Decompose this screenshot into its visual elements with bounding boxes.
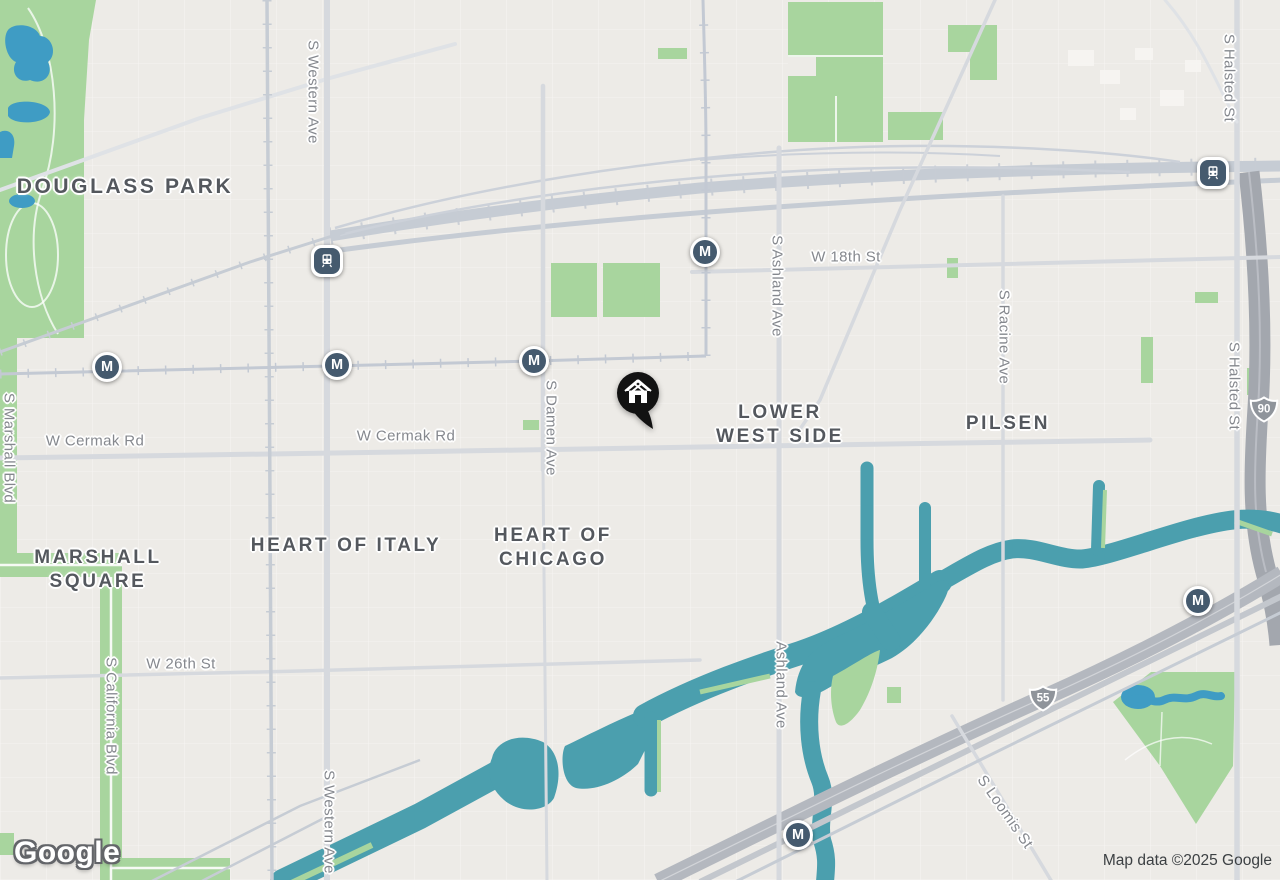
map-attribution: Map data ©2025 Google	[1103, 852, 1272, 870]
metro-station-marker-california[interactable]: M	[92, 352, 122, 382]
metro-station-marker-18th[interactable]: M	[690, 237, 720, 267]
train-station-marker-western[interactable]	[311, 245, 343, 277]
metro-station-marker-western[interactable]: M	[322, 350, 352, 380]
metro-icon: M	[786, 823, 810, 847]
cermak-rd-road	[0, 440, 1150, 458]
metro-station-marker-ashland[interactable]: M	[783, 820, 813, 850]
train-icon	[314, 248, 340, 274]
map-geometry	[0, 0, 1280, 880]
pond-areas	[0, 25, 1221, 709]
interstate-55-shield: 55	[1028, 684, 1058, 712]
interstate-55-number: 55	[1037, 693, 1050, 705]
train-station-marker-halsted[interactable]	[1197, 157, 1229, 189]
train-icon	[1200, 160, 1226, 186]
metro-icon: M	[325, 353, 349, 377]
interstate-90-number: 90	[1258, 404, 1271, 416]
metro-icon: M	[693, 240, 717, 264]
home-pin[interactable]	[612, 367, 666, 433]
map-canvas[interactable]: DOUGLASS PARK MARSHALL SQUARE HEART OF I…	[0, 0, 1280, 880]
bubbly-creek	[809, 690, 826, 880]
google-logo[interactable]: Google	[14, 836, 120, 870]
metro-icon: M	[95, 355, 119, 379]
metro-station-marker-damen[interactable]: M	[519, 346, 549, 376]
metro-station-marker-halsted[interactable]: M	[1183, 586, 1213, 616]
metro-icon: M	[522, 349, 546, 373]
metro-icon: M	[1186, 589, 1210, 613]
loomis-st-road	[952, 716, 1052, 880]
building-footprints	[1068, 48, 1201, 120]
interstate-90-shield: 90	[1249, 395, 1279, 423]
rail-corridor	[330, 146, 1280, 250]
